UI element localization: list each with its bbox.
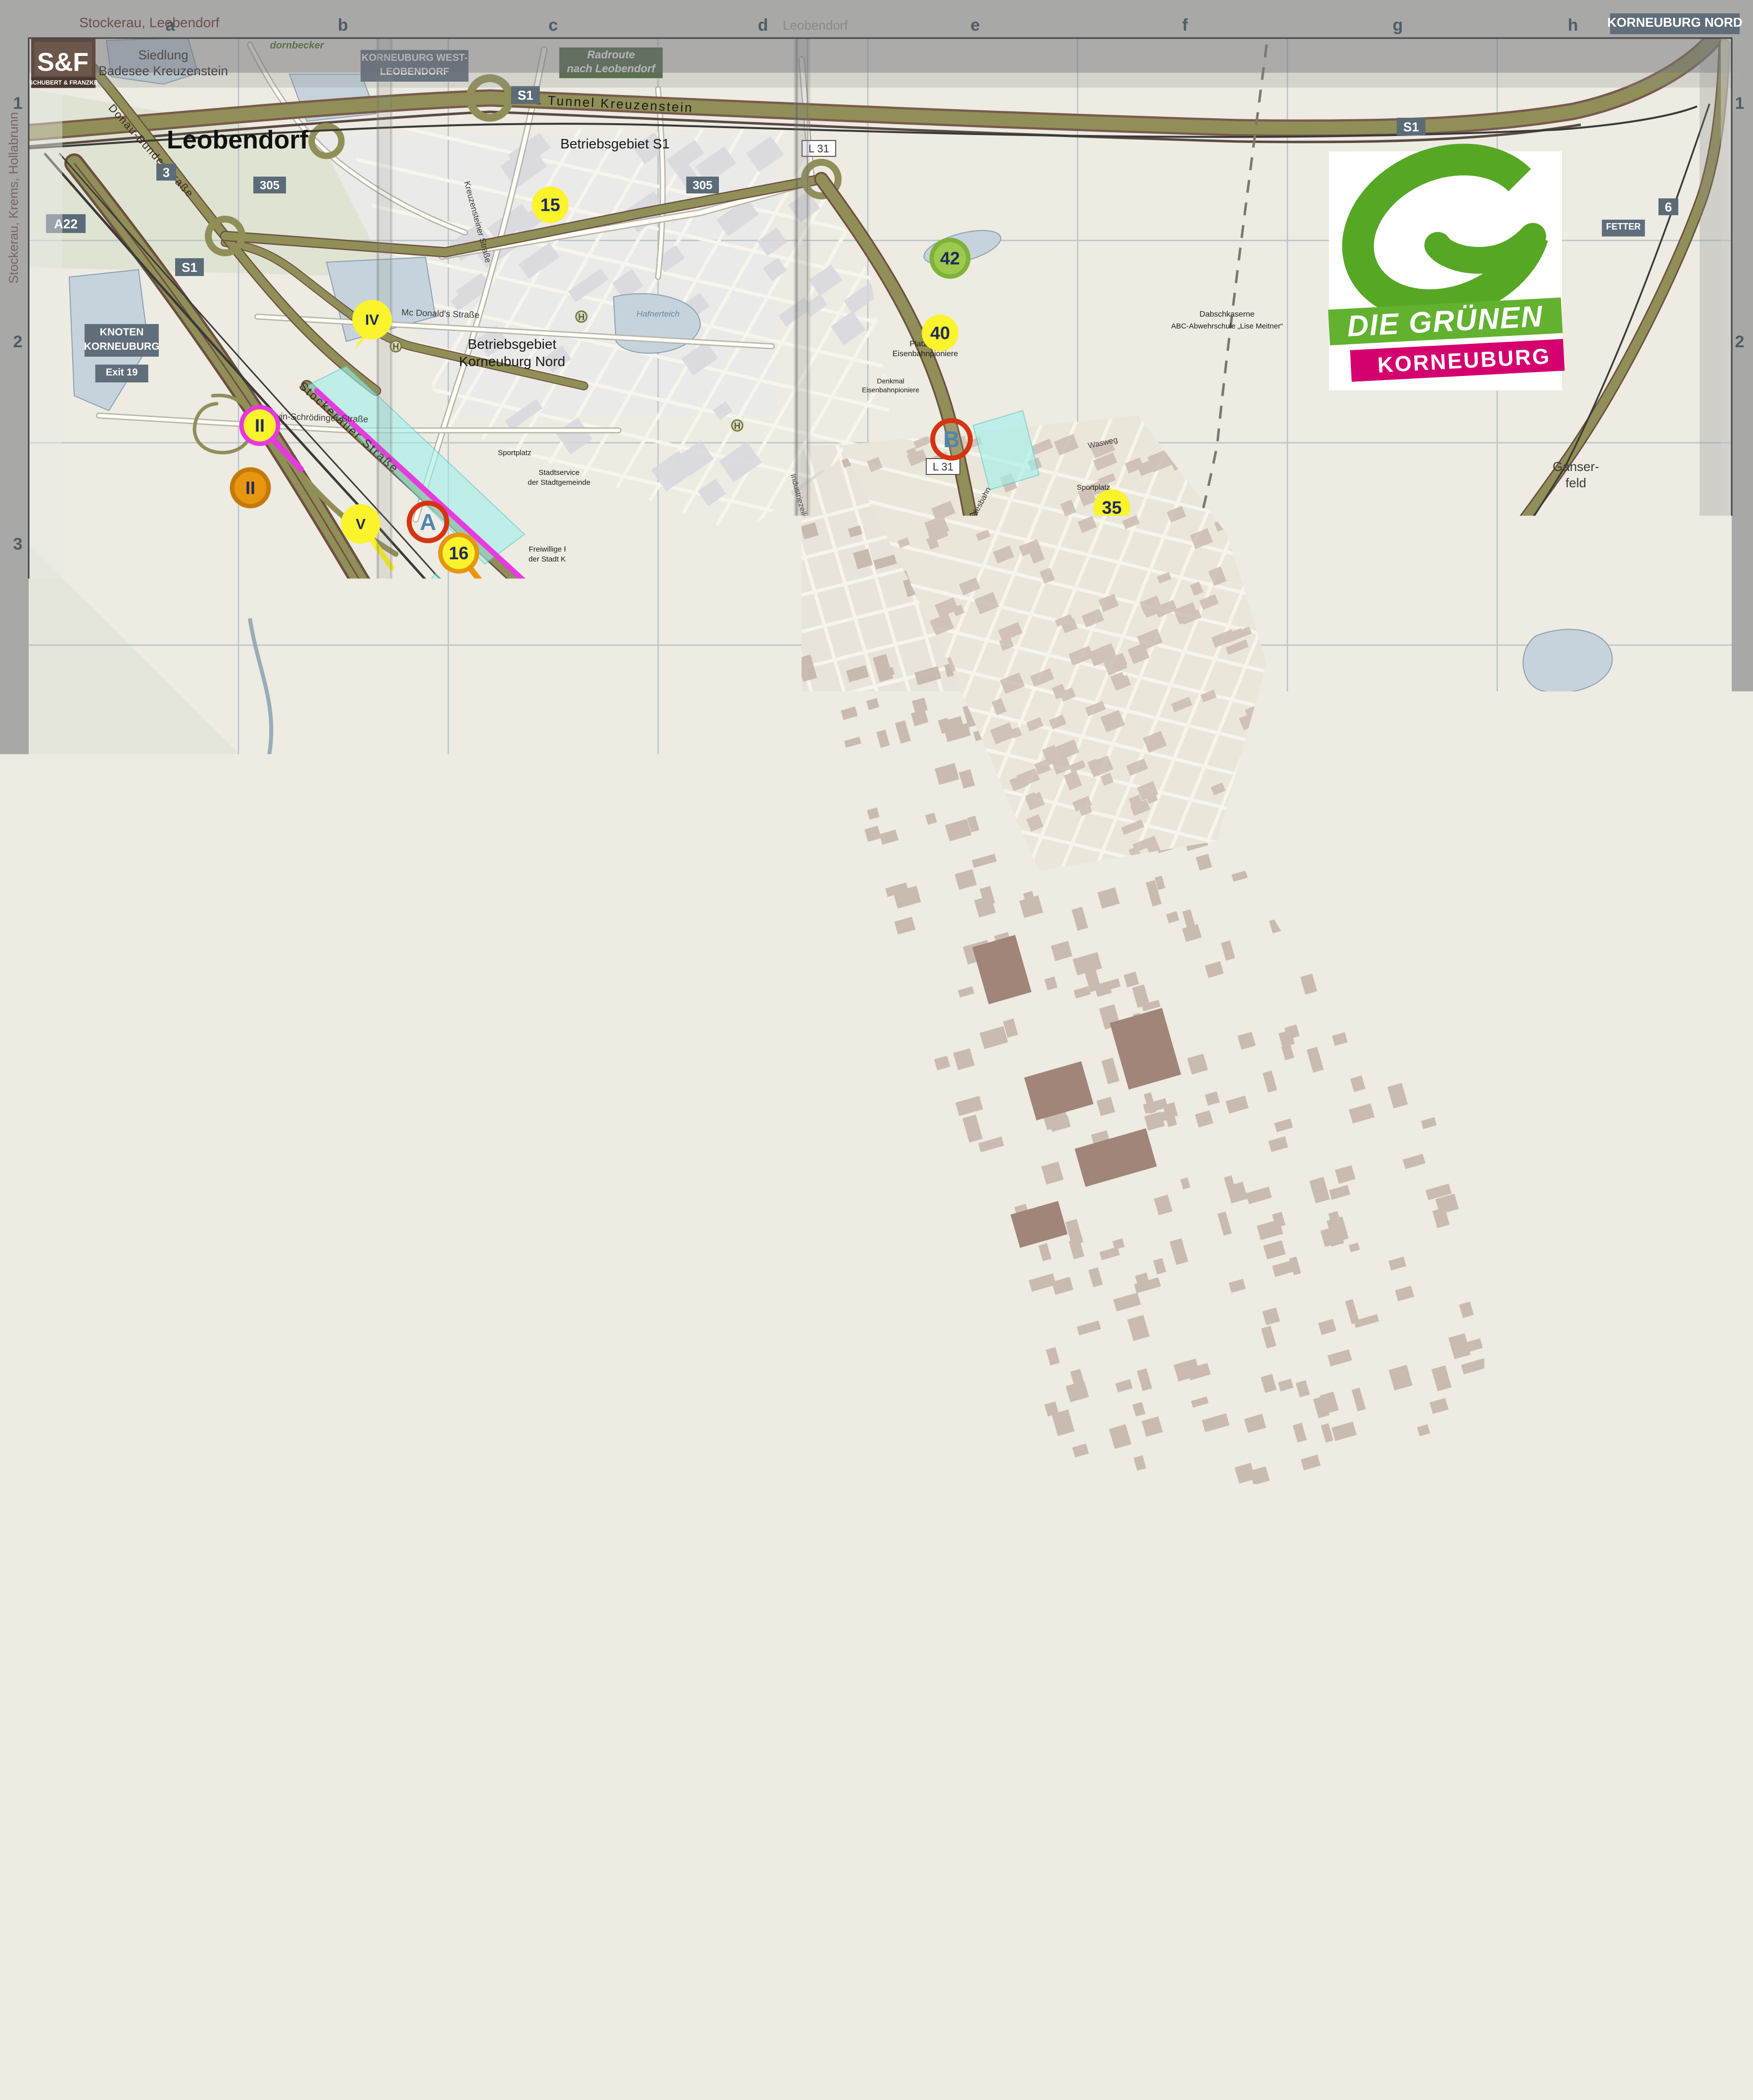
svg-text:t: t [708, 815, 711, 825]
svg-text:Radroute: Radroute [113, 1939, 147, 1949]
svg-text:8: 8 [13, 1546, 23, 1565]
svg-text:3: 3 [1735, 535, 1745, 554]
svg-text:S1: S1 [182, 260, 197, 275]
svg-text:Dabschkaserne: Dabschkaserne [1199, 310, 1254, 319]
svg-text:10: 10 [1192, 702, 1212, 722]
svg-text:9: 9 [1735, 1749, 1745, 1768]
svg-text:H: H [230, 1969, 236, 1979]
svg-text:7: 7 [1735, 1344, 1745, 1363]
svg-text:Schrebergärten: Schrebergärten [693, 1027, 751, 1036]
svg-text:Jugend-: Jugend- [1106, 983, 1131, 991]
svg-text:nur Bebauungsplan: nur Bebauungsplan [152, 940, 306, 960]
svg-text:Kirchenpl.: Kirchenpl. [1122, 1050, 1155, 1058]
svg-text:t: t [731, 855, 734, 865]
svg-text:i: i [231, 1908, 235, 1921]
svg-text:Stadtservice: Stadtservice [539, 468, 580, 477]
svg-text:1: 1 [1735, 94, 1745, 113]
svg-text:t: t [706, 852, 709, 861]
svg-text:47: 47 [724, 559, 744, 579]
svg-text:27: 27 [1273, 1245, 1292, 1265]
svg-text:Kwidzallee: Kwidzallee [1736, 74, 1738, 75]
svg-text:Rathaus: Rathaus [1036, 1151, 1062, 1159]
svg-text:Hofrat: Hofrat [1682, 1750, 1703, 1758]
svg-text:H: H [1006, 678, 1013, 688]
svg-text:i-II: i-II [779, 936, 794, 951]
svg-text:P: P [723, 1452, 731, 1467]
svg-text:Tanklager: Tanklager [1151, 1851, 1184, 1860]
svg-text:i-VI: i-VI [1046, 1634, 1065, 1648]
svg-text:Sporthallen: Sporthallen [1155, 986, 1190, 994]
svg-text:Gewässer: Gewässer [259, 1773, 297, 1783]
svg-text:der Stadtgemeinde: der Stadtgemeinde [528, 478, 591, 487]
svg-text:S&F: S&F [37, 48, 89, 77]
svg-text:S1: S1 [1403, 119, 1419, 134]
svg-text:III: III [1124, 1810, 1136, 1826]
svg-text:Radweg: Radweg [113, 1924, 143, 1933]
svg-text:i-XI: i-XI [901, 1024, 919, 1037]
svg-text:H: H [1199, 1687, 1206, 1697]
svg-text:51: 51 [990, 601, 1010, 621]
svg-text:i-IV: i-IV [939, 1144, 959, 1159]
svg-text:H: H [393, 342, 399, 352]
svg-text:t: t [770, 854, 772, 864]
svg-text:22: 22 [1178, 1238, 1198, 1258]
svg-text:7: 7 [13, 1344, 23, 1363]
svg-text:16: 16 [449, 543, 469, 563]
svg-text:P: P [939, 1279, 947, 1294]
svg-text:KORNEUBURG OST: KORNEUBURG OST [1218, 1824, 1313, 1835]
svg-text:P: P [1252, 1133, 1260, 1148]
svg-text:K: K [943, 1364, 959, 1390]
svg-text:h: h [1568, 16, 1578, 35]
svg-text:kirche: kirche [1100, 1048, 1117, 1056]
svg-text:Hafnerteich: Hafnerteich [637, 309, 680, 319]
svg-text:2: 2 [13, 332, 23, 351]
svg-text:Sportplatz: Sportplatz [1077, 483, 1110, 492]
svg-text:XIV: XIV [89, 987, 116, 1006]
svg-text:Dieses Werk genießt für den Ve: Dieses Werk genießt für den Verlag Schub… [1035, 2062, 1616, 2069]
svg-text:49: 49 [1065, 758, 1085, 779]
svg-text:J: J [1077, 1366, 1090, 1392]
svg-text:43: 43 [444, 589, 464, 609]
svg-text:dazu hätten wir: dazu hätten wir [152, 1141, 273, 1162]
svg-text:≈: ≈ [224, 1940, 228, 1949]
svg-text:KORNEUBURG: KORNEUBURG [84, 341, 160, 352]
svg-text:Denkmal: Denkmal [877, 377, 904, 385]
svg-text:i-V: i-V [1094, 1419, 1111, 1434]
svg-text:≋: ≋ [240, 1940, 246, 1949]
svg-text:50: 50 [1410, 798, 1430, 819]
svg-text:Eisenbahnpioniere: Eisenbahnpioniere [862, 386, 919, 394]
svg-text:Süd: Süd [1223, 1538, 1247, 1553]
svg-text:D: D [885, 973, 901, 999]
svg-text:19: 19 [1043, 1580, 1063, 1600]
svg-text:Öffentliche Gebäude: Öffentliche Gebäude [259, 1879, 336, 1888]
svg-text:und Bebauungsplan 2020: und Bebauungsplan 2020 [74, 883, 300, 905]
svg-text:t: t [725, 832, 728, 841]
svg-text:Park bzw. Kleingärten: Park bzw. Kleingärten [259, 1819, 340, 1828]
svg-text:Sportplatz: Sportplatz [498, 449, 531, 457]
svg-text:Bhf. Korneuburg: Bhf. Korneuburg [846, 1209, 925, 1221]
svg-text:Bebauungsplan: Bebauungsplan [152, 999, 276, 1019]
svg-text:4: 4 [13, 737, 23, 756]
svg-text:P: P [1470, 696, 1478, 710]
svg-text:NÖ - Landesjugendheim: NÖ - Landesjugendheim [692, 696, 773, 704]
svg-text:Martin-: Martin- [1216, 1188, 1238, 1196]
svg-text:Wasserdienst: Wasserdienst [702, 1466, 743, 1474]
svg-text:25: 25 [940, 854, 960, 874]
svg-text:A: A [96, 1036, 108, 1055]
svg-text:Kirche, Denkmal: Kirche, Denkmal [259, 1894, 321, 1904]
svg-text:b: b [338, 2061, 348, 2080]
svg-text:turm: turm [557, 1298, 571, 1306]
svg-text:e: e [971, 2061, 980, 2080]
svg-text:Praxis: Praxis [1010, 1235, 1029, 1243]
svg-text:40: 40 [930, 323, 950, 343]
svg-text:Bisamberg: Bisamberg [1608, 695, 1648, 704]
svg-text:K: K [896, 1435, 912, 1461]
svg-text:Flächenwidmungs- und: Flächenwidmungs- und [152, 977, 336, 997]
svg-text:†: † [222, 1889, 232, 1908]
svg-text:H: H [734, 421, 741, 431]
svg-text:g: g [1393, 16, 1403, 35]
svg-text:H: H [635, 1494, 642, 1504]
svg-text:P: P [1084, 1145, 1092, 1160]
svg-text:von Bauklasse II auf I,II: von Bauklasse II auf I,II [152, 1035, 337, 1055]
svg-text:01: 01 [793, 1020, 813, 1040]
svg-text:S1: S1 [518, 88, 533, 102]
svg-text:3: 3 [72, 1803, 78, 1815]
svg-text:(167 m): (167 m) [1292, 617, 1340, 632]
svg-text:10: 10 [1730, 1951, 1749, 1970]
svg-text:48: 48 [741, 1167, 761, 1188]
svg-text:t: t [812, 856, 815, 866]
svg-text:Friedhof: Friedhof [259, 1835, 290, 1844]
svg-text:t: t [832, 812, 835, 822]
svg-text:Haltestelle Anrufsammeltaxi: Haltestelle Anrufsammeltaxi [259, 1984, 363, 1993]
svg-text:t: t [708, 834, 711, 843]
svg-text:P: P [1424, 1533, 1432, 1548]
svg-text:SPZ: SPZ [750, 528, 764, 536]
svg-text:10: 10 [1018, 531, 1038, 551]
svg-text:Consulting: Consulting [643, 1267, 673, 1275]
svg-text:305: 305 [260, 179, 280, 192]
svg-text:t: t [835, 852, 837, 862]
svg-text:Sportplatz: Sportplatz [745, 874, 779, 883]
svg-text:28: 28 [1248, 1350, 1268, 1370]
svg-text:5: 5 [1735, 939, 1745, 958]
svg-text:platz: platz [453, 1065, 467, 1073]
svg-text:i-IX: i-IX [1009, 1710, 1027, 1724]
svg-text:Betriebsgebiet: Betriebsgebiet [468, 336, 556, 352]
svg-text:10: 10 [8, 1951, 27, 1970]
svg-text:e: e [971, 16, 980, 35]
svg-text:ABC-Abwehrschule „Lise Meitner: ABC-Abwehrschule „Lise Meitner“ [1171, 322, 1283, 330]
svg-text:A22: A22 [64, 1772, 85, 1784]
svg-text:1: 1 [13, 94, 23, 113]
svg-text:99: 99 [93, 941, 111, 960]
svg-text:Information: Information [259, 1909, 301, 1918]
svg-text:Tunnel: Tunnel [113, 1789, 138, 1799]
svg-text:Sonderpädagog.: Sonderpädagog. [730, 538, 785, 546]
svg-text:Sonstige Straße: Sonstige Straße [113, 1835, 173, 1844]
svg-text:i-VIII: i-VIII [564, 936, 586, 948]
svg-text:Luther-: Luther- [1216, 1196, 1238, 1204]
svg-text:53: 53 [1032, 976, 1052, 996]
svg-text:Langenzersdorf,Wien: Langenzersdorf,Wien [1638, 2064, 1753, 2079]
svg-text:i-X: i-X [1113, 1953, 1130, 1967]
svg-text:f: f [1182, 16, 1188, 35]
svg-text:17: 17 [939, 749, 958, 769]
svg-text:Landesklinikum Weinviertel: Landesklinikum Weinviertel [1185, 1150, 1269, 1158]
svg-text:Freiwillige Feuerwehr: Freiwillige Feuerwehr [529, 545, 600, 554]
svg-text:Nebenbahn: Nebenbahn [113, 1984, 156, 1993]
svg-text:Blue: Blue [573, 1182, 597, 1195]
svg-text:HAK: HAK [1001, 958, 1015, 966]
svg-text:„Kleinigkeiten“ bzw. Anpassung: „Kleinigkeiten“ bzw. Anpassung [152, 1309, 398, 1329]
svg-text:02: 02 [933, 993, 952, 1013]
svg-text:d: d [758, 2061, 768, 2080]
svg-text:31: 31 [683, 747, 703, 767]
svg-text:t t t t: t t t t [226, 1835, 245, 1846]
svg-text:Gemeindegrenze: Gemeindegrenze [259, 1789, 324, 1799]
svg-text:Musikschule: Musikschule [1010, 1072, 1048, 1080]
svg-text:H: H [1343, 1287, 1359, 1313]
svg-text:Parkplatz, Park & Ride: Parkplatz, Park & Ride [259, 1924, 344, 1933]
svg-text:platz: platz [602, 1253, 615, 1260]
svg-text:30: 30 [1200, 1022, 1220, 1042]
svg-text:KORNEUBURG NORD: KORNEUBURG NORD [1608, 15, 1743, 30]
svg-text:Schreber-: Schreber- [867, 1467, 904, 1476]
svg-text:Polizei: Polizei [515, 1310, 534, 1317]
svg-text:Stockerau, Leobendorf: Stockerau, Leobendorf [79, 15, 220, 30]
svg-text:G: G [1222, 1212, 1239, 1237]
svg-text:37: 37 [1298, 1340, 1318, 1360]
svg-text:C: C [1136, 706, 1152, 732]
svg-text:3: 3 [1543, 1845, 1550, 1860]
svg-text:VII: VII [631, 1108, 648, 1123]
svg-text:Nebenverbindung: Nebenverbindung [113, 1819, 179, 1828]
svg-text:t: t [789, 856, 791, 865]
svg-text:F: F [1221, 1084, 1234, 1110]
svg-text:34: 34 [934, 1192, 954, 1213]
svg-text:I: I [1280, 1380, 1287, 1405]
svg-text:14: 14 [1094, 896, 1113, 915]
svg-text:Einschätzung GRÜNE Korneuburg: Einschätzung GRÜNE Korneuburg [74, 907, 379, 929]
svg-text:Wasser-: Wasser- [551, 1290, 577, 1298]
svg-text:H: H [1058, 1199, 1065, 1209]
svg-text:Gewerbegebiet: Gewerbegebiet [259, 1850, 317, 1859]
svg-text:P: P [1054, 1094, 1062, 1109]
svg-text:c: c [549, 16, 558, 35]
svg-text:Exit 16: Exit 16 [1251, 1846, 1280, 1856]
svg-text:Hauptbahn: Hauptbahn [113, 1969, 154, 1979]
svg-text:E: E [1353, 912, 1368, 938]
svg-text:P: P [1135, 957, 1143, 972]
svg-text:15: 15 [540, 195, 560, 215]
svg-text:KORNEUBURG: KORNEUBURG [1229, 585, 1404, 611]
svg-text:b: b [338, 16, 348, 35]
svg-text:Betriebsgebiet S1: Betriebsgebiet S1 [560, 136, 669, 151]
svg-text:t: t [748, 856, 750, 866]
svg-text:4: 4 [1735, 737, 1745, 756]
svg-text:N: N [1673, 2026, 1682, 2041]
svg-text:H: H [945, 562, 951, 572]
svg-text:Sportplatz: Sportplatz [1106, 929, 1140, 937]
svg-text:Altersheim: Altersheim [1028, 899, 1060, 907]
svg-text:A: A [420, 509, 436, 535]
svg-text:Hagenbrunn: Hagenbrunn [1735, 1169, 1749, 1235]
svg-text:Eisenbahnpioniere: Eisenbahnpioniere [893, 350, 958, 358]
svg-text:t: t [813, 873, 816, 883]
svg-text:Korneuburg: Korneuburg [1209, 1159, 1245, 1167]
svg-text:saal: saal [1132, 1248, 1144, 1256]
svg-text:c: c [549, 2061, 558, 2080]
svg-text:Alte Werft: Alte Werft [558, 1260, 615, 1274]
svg-text:Korneuburg: Korneuburg [683, 632, 722, 640]
svg-text:Fahrweg: Fahrweg [113, 1850, 145, 1859]
svg-text:Park: Park [572, 1212, 597, 1225]
svg-text:i-VII: i-VII [725, 1406, 747, 1419]
svg-text:II: II [245, 478, 255, 498]
svg-text:kammer: kammer [1091, 1293, 1116, 1301]
svg-text:I: I [86, 818, 90, 834]
svg-text:P: P [1150, 1096, 1159, 1111]
svg-text:Kindersspielpl.: Kindersspielpl. [701, 1400, 705, 1400]
svg-text:Einbahn: Einbahn [113, 1865, 143, 1874]
svg-text:Dr.-Rudolf-: Dr.-Rudolf- [1210, 570, 1244, 578]
svg-text:Industriepark: Industriepark [1195, 1502, 1276, 1518]
svg-text:Hartplatz: Hartplatz [727, 780, 757, 789]
svg-text:Maßstab 1 : 7 500: Maßstab 1 : 7 500 [151, 2002, 249, 2015]
svg-text:24: 24 [880, 857, 900, 878]
svg-text:18: 18 [1352, 712, 1368, 728]
svg-text:VI: VI [593, 749, 607, 766]
svg-text:21: 21 [1219, 1049, 1239, 1069]
svg-text:P: P [1040, 1126, 1048, 1141]
svg-text:a: a [166, 2061, 176, 2080]
svg-text:t: t [831, 873, 834, 883]
svg-text:23: 23 [948, 1082, 968, 1102]
svg-text:☏: ☏ [218, 1951, 234, 1965]
svg-text:H: H [1600, 1237, 1607, 1247]
svg-text:da sind wir skeptisch: da sind wir skeptisch [152, 1257, 316, 1277]
svg-text:FETTER: FETTER [1606, 222, 1641, 232]
svg-text:Beachvolleyballplatz: Beachvolleyballplatz [718, 805, 786, 813]
svg-text:39: 39 [1133, 1385, 1153, 1405]
svg-text:Leobendorf: Leobendorf [167, 126, 309, 154]
svg-text:Donaublick: Donaublick [966, 1751, 1003, 1759]
svg-text:Korneuburg Nord: Korneuburg Nord [459, 354, 566, 369]
svg-text:Autobahn/Schnellstraße: Autobahn/Schnellstraße [113, 1773, 202, 1783]
svg-text:H: H [1125, 807, 1132, 817]
svg-text:t: t [707, 871, 709, 881]
svg-text:AHS: AHS [695, 622, 711, 630]
svg-text:Badeteich: Badeteich [1609, 683, 1647, 692]
svg-text:t: t [771, 832, 774, 841]
svg-text:i-III: i-III [768, 1101, 787, 1116]
svg-text:6: 6 [1665, 199, 1672, 214]
svg-text:t: t [730, 816, 733, 826]
svg-text:9: 9 [13, 1749, 23, 1768]
svg-text:29: 29 [1380, 1308, 1400, 1329]
svg-text:Hallenbad, Freibad: Hallenbad, Freibad [259, 1939, 331, 1949]
svg-text:d: d [758, 16, 768, 35]
svg-text:Fußweg: Fußweg [113, 1909, 143, 1918]
svg-text:A22: A22 [1261, 2010, 1284, 2025]
svg-text:t: t [726, 871, 729, 880]
svg-text:Bushaltestelle: Bushaltestelle [259, 1969, 312, 1979]
svg-text:Europa-: Europa- [597, 1246, 620, 1253]
svg-text:Salzweg: Salzweg [487, 1028, 512, 1035]
svg-text:Radweg: Radweg [737, 1754, 775, 1765]
svg-text:t: t [767, 814, 769, 823]
svg-text:feld: feld [1565, 475, 1586, 490]
svg-text:41: 41 [997, 1288, 1017, 1308]
svg-text:35: 35 [1102, 498, 1122, 518]
svg-text:i-I: i-I [839, 929, 852, 944]
svg-text:36: 36 [1175, 1269, 1195, 1289]
svg-text:Wald: Wald [259, 1804, 278, 1814]
svg-text:II: II [255, 416, 265, 436]
svg-text:Donau-: Donau- [739, 1741, 773, 1752]
svg-text:ÖBB: ÖBB [854, 1188, 876, 1200]
svg-text:der Stadt Korneuburg: der Stadt Korneuburg [528, 555, 599, 563]
svg-text:2: 2 [1735, 332, 1745, 351]
svg-text:Danube: Danube [564, 1197, 606, 1210]
svg-text:Ergänzungsvorschläge: Ergänzungsvorschläge [152, 1163, 333, 1183]
svg-text:H: H [967, 1420, 973, 1430]
svg-text:3: 3 [13, 535, 23, 554]
svg-text:zentrum: zentrum [1106, 991, 1131, 999]
svg-text:ZEICHENERKLÄRUNG: ZEICHENERKLÄRUNG [132, 1749, 271, 1764]
svg-text:6: 6 [13, 1142, 23, 1161]
svg-text:V: V [356, 516, 366, 533]
svg-text:6: 6 [1207, 868, 1214, 883]
svg-text:t: t [812, 832, 814, 841]
svg-text:das finden wir gut: das finden wir gut [152, 1104, 291, 1124]
svg-text:P: P [222, 1922, 230, 1935]
svg-text:Freizeitanlage: Freizeitanlage [961, 1740, 1008, 1748]
svg-text:6: 6 [1735, 1142, 1745, 1161]
svg-text:Landesgerichts-: Landesgerichts- [437, 1058, 483, 1065]
svg-text:Franz-Guggenberger-: Franz-Guggenberger- [1139, 978, 1206, 986]
svg-text:5: 5 [13, 939, 23, 958]
svg-text:Hauptverbindung: Hauptverbindung [113, 1804, 177, 1814]
svg-text:Musikfreunde-: Musikfreunde- [1116, 1240, 1160, 1248]
svg-text:Finz-Str.: Finz-Str. [1214, 578, 1240, 586]
svg-text:KNOTEN: KNOTEN [100, 327, 144, 338]
svg-text:i-XII: i-XII [1119, 1491, 1141, 1504]
svg-text:B: B [943, 426, 959, 452]
svg-text:Arbeiter-: Arbeiter- [1090, 1285, 1117, 1293]
svg-text:Verkehrsberuhigte Zone: Verkehrsberuhigte Zone [113, 1879, 202, 1888]
svg-text:P+R: P+R [238, 1925, 252, 1933]
svg-text:das finden wir gar nicht gut: das finden wir gar nicht gut [152, 1208, 365, 1228]
svg-text:t: t [790, 872, 792, 882]
svg-text:H: H [230, 1985, 236, 1993]
svg-text:t: t [751, 816, 753, 826]
svg-text:Ganser-: Ganser- [1553, 459, 1599, 474]
svg-text:Haupt-: Haupt- [1030, 1110, 1070, 1125]
svg-text:305: 305 [693, 179, 712, 192]
svg-text:Beachvolleyball: Beachvolleyball [969, 1787, 1020, 1795]
svg-text:Feldweg: Feldweg [113, 1954, 144, 1963]
svg-text:Post, Rettungsdienst: Post, Rettungsdienst [259, 1954, 337, 1963]
svg-text:Leobendorf: Leobendorf [783, 18, 848, 33]
svg-text:Bildungs-Gastro-: Bildungs-Gastro- [1129, 1466, 1177, 1473]
svg-text:SCHUBERT & FRANZKE: SCHUBERT & FRANZKE [29, 79, 97, 86]
